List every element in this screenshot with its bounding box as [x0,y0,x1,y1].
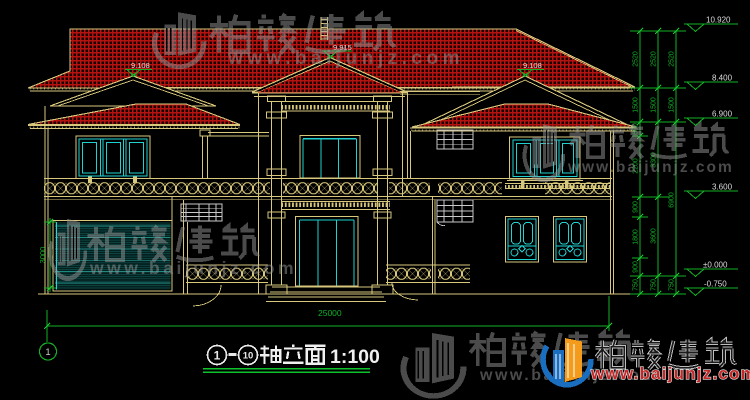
svg-text:25000: 25000 [318,308,342,318]
svg-text:6.900: 6.900 [712,110,733,119]
svg-text:750: 750 [651,279,658,291]
svg-text:1800: 1800 [633,229,640,245]
svg-text:2520: 2520 [669,51,676,67]
svg-text:www.baijunjz.com: www.baijunjz.com [590,364,750,383]
svg-text:www.baijunjz.com: www.baijunjz.com [227,48,464,69]
svg-text:6900: 6900 [669,192,676,208]
svg-text:900: 900 [633,201,640,213]
svg-text:www.baijunjz.com: www.baijunjz.com [567,159,734,176]
svg-text:10.920: 10.920 [706,16,731,25]
svg-text:1500: 1500 [651,97,658,113]
svg-text:±0.000: ±0.000 [703,261,728,270]
svg-text:9.108: 9.108 [523,61,542,70]
svg-text:8.400: 8.400 [712,74,733,83]
svg-text:3000: 3000 [38,247,47,264]
svg-text:www.baijunjz.com: www.baijunjz.com [89,258,297,278]
svg-text:2520: 2520 [651,51,658,67]
svg-text:1500: 1500 [669,97,676,113]
svg-text:750: 750 [669,279,676,291]
svg-text:9.108: 9.108 [131,61,150,70]
svg-text:1: 1 [45,347,50,358]
svg-text:10: 10 [243,351,254,362]
svg-text:-0.750: -0.750 [704,280,727,289]
svg-text:1500: 1500 [633,97,640,113]
svg-text:1:100: 1:100 [330,346,380,368]
svg-text:750: 750 [633,279,640,291]
svg-text:900: 900 [633,261,640,273]
svg-text:2520: 2520 [633,51,640,67]
svg-text:3.600: 3.600 [712,183,733,192]
svg-text:1: 1 [214,349,221,363]
svg-text:3600: 3600 [651,228,658,244]
